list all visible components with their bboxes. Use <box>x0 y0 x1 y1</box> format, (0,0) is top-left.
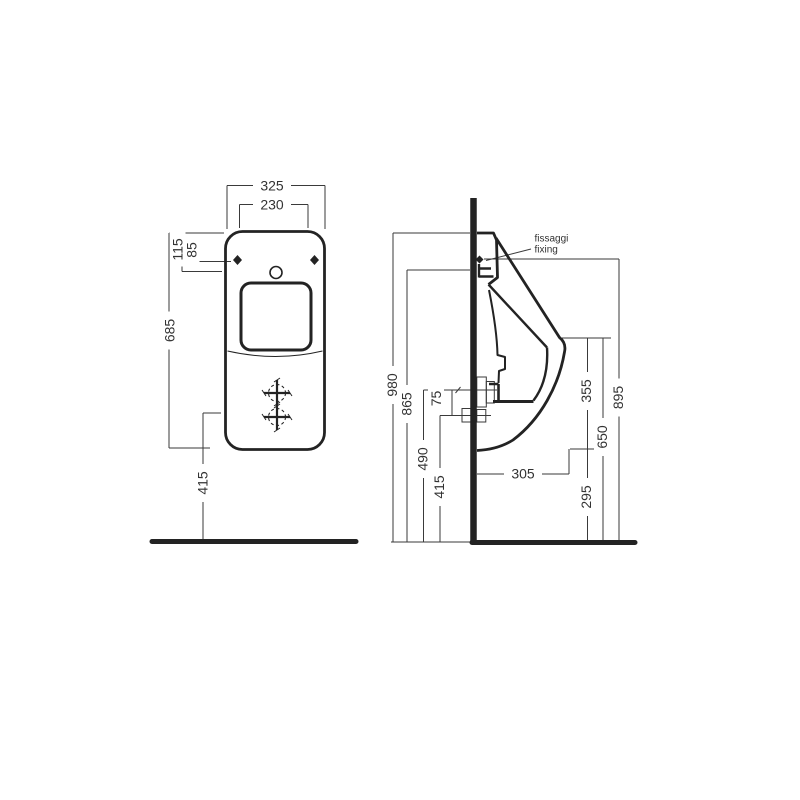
urinal-installation-drawing: 325 230 115 85 685 415 980 <box>0 0 800 800</box>
inlet-hole <box>270 267 282 279</box>
dim-side-inlet-height: 490 <box>415 440 431 478</box>
dim-front-outlet-height: 415 <box>195 464 211 502</box>
dim-side-depth: 305 <box>504 466 542 482</box>
dim-side-outlet-height: 415 <box>431 468 447 506</box>
technical-drawing-canvas: 325 230 115 85 685 415 980 <box>0 0 800 800</box>
dim-front-overall-width: 325 <box>253 178 291 194</box>
dim-label: 305 <box>511 466 535 482</box>
dim-label: 415 <box>431 475 447 499</box>
dim-side-inlet-outlet-gap: 75 <box>428 386 444 412</box>
dim-side-fixing-height-2: 895 <box>610 379 626 417</box>
dim-side-rim-height: 650 <box>594 418 610 456</box>
dim-side-fixing-height-1: 865 <box>399 385 415 423</box>
side-view <box>391 198 635 543</box>
fixing-bracket-icon <box>479 264 494 278</box>
dim-label: 295 <box>578 485 594 509</box>
dim-label: 865 <box>399 392 415 416</box>
dim-side-bottom-clearance: 295 <box>578 478 594 516</box>
dim-label: 85 <box>184 242 200 258</box>
dim-side-rim-to-bottom: 355 <box>578 372 594 410</box>
dim-front-fixing-offset-2: 85 <box>184 237 200 263</box>
dim-label: 75 <box>428 391 444 407</box>
dim-label: 650 <box>594 425 610 449</box>
dim-label: 895 <box>610 386 626 410</box>
fixing-hole-left-icon <box>233 255 242 265</box>
fixing-callout-line2: fixing <box>535 245 558 256</box>
fixing-callout: fissaggi fixing <box>535 234 569 256</box>
dim-label: 415 <box>195 471 211 495</box>
dimension-labels: 325 230 115 85 685 415 980 <box>162 178 627 517</box>
fixing-hole-right-icon <box>310 255 319 265</box>
dim-label: 355 <box>578 379 594 403</box>
urinal-basin-opening <box>241 283 311 350</box>
dim-front-fixing-centers: 230 <box>253 197 291 213</box>
dim-label: 490 <box>415 447 431 471</box>
dim-label: 230 <box>260 197 284 213</box>
outlet-crosshair-icon <box>262 402 292 432</box>
dim-label: 325 <box>260 178 284 194</box>
dim-front-body-height: 685 <box>162 312 178 350</box>
urinal-side-profile <box>476 233 565 451</box>
urinal-shelf-line <box>228 351 323 357</box>
fixing-callout-line1: fissaggi <box>535 234 569 245</box>
dim-label: 685 <box>162 319 178 343</box>
